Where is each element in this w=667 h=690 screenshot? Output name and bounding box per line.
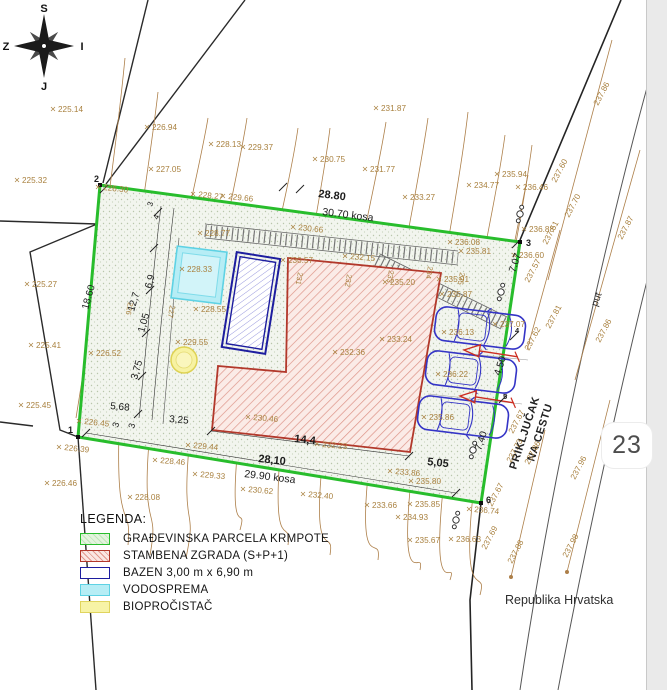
elevation-label: 235.67 bbox=[415, 536, 440, 545]
dimension-label: 3,25 bbox=[169, 414, 190, 427]
elevation-label: 237.07 bbox=[500, 320, 525, 329]
elevation-label: 236.08 bbox=[455, 238, 480, 247]
elevation-label: 236.22 bbox=[443, 370, 468, 379]
elevation-label: 234.93 bbox=[403, 513, 428, 522]
legend-item-building: STAMBENA ZGRADA (S+P+1) bbox=[80, 550, 329, 562]
elevation-label: 235.81 bbox=[466, 247, 491, 256]
dimension-label: 28.80 bbox=[318, 188, 347, 203]
gate-symbol bbox=[451, 510, 462, 529]
elevation-label: 231.87 bbox=[381, 104, 406, 113]
point-label: 1 bbox=[68, 425, 73, 435]
elevation-label: 226.52 bbox=[96, 349, 121, 358]
elevation-label: 225.32 bbox=[22, 176, 47, 185]
compass-north-label: S bbox=[40, 3, 47, 15]
dimension-label: 5,05 bbox=[427, 456, 450, 470]
dimension-label: 5,68 bbox=[110, 401, 131, 414]
elevation-marker bbox=[396, 515, 400, 519]
road-elevation-label: 237.86 bbox=[592, 80, 612, 107]
elevation-label: 226.39 bbox=[64, 443, 90, 455]
elevation-label: 233.27 bbox=[410, 193, 435, 202]
elevation-label: 233.24 bbox=[387, 335, 412, 344]
page-number-badge[interactable]: 23 bbox=[602, 423, 652, 468]
elevation-marker bbox=[45, 481, 49, 485]
elevation-label: 229.37 bbox=[248, 143, 273, 152]
elevation-marker bbox=[408, 538, 412, 542]
elevation-label: 236.74 bbox=[474, 505, 500, 516]
legend-title: LEGENDA: bbox=[80, 512, 329, 526]
legend-item-label: GRAĐEVINSKA PARCELA KRMPOTE bbox=[123, 533, 329, 545]
compass-east-label: I bbox=[80, 41, 83, 53]
legend-item-label: BAZEN 3,00 m x 6,90 m bbox=[123, 567, 253, 579]
elevation-label: 232.36 bbox=[340, 348, 365, 357]
elevation-marker bbox=[363, 167, 367, 171]
legend-item-label: VODOSPREMA bbox=[123, 584, 208, 596]
legend-swatch-pool bbox=[80, 567, 110, 579]
elevation-marker bbox=[149, 167, 153, 171]
legend: LEGENDA: GRAĐEVINSKA PARCELA KRMPOTESTAM… bbox=[80, 512, 329, 618]
legend-swatch-bio bbox=[80, 601, 110, 613]
cistern bbox=[171, 246, 227, 304]
elevation-marker bbox=[29, 343, 33, 347]
elevation-label: 235.94 bbox=[502, 170, 527, 179]
legend-item-parcel: GRAĐEVINSKA PARCELA KRMPOTE bbox=[80, 533, 329, 545]
road-elevation-label: 237.86 bbox=[594, 317, 614, 344]
legend-swatch-parcel bbox=[80, 533, 110, 545]
elevation-label: 228.77 bbox=[205, 229, 230, 238]
elevation-label: 228.08 bbox=[135, 493, 160, 502]
elevation-label: 229.55 bbox=[183, 338, 208, 347]
elevation-label: 234.77 bbox=[474, 181, 499, 190]
right-margin-strip bbox=[646, 0, 667, 690]
elevation-label: 233.66 bbox=[372, 501, 397, 510]
compass-rose: S J Z I bbox=[3, 3, 84, 93]
elevation-label: 236.13 bbox=[449, 328, 474, 337]
elevation-marker bbox=[51, 107, 55, 111]
point-label: 3 bbox=[526, 238, 531, 248]
elevation-label: 235.86 bbox=[429, 413, 454, 422]
road-elevation-label: 237.69 bbox=[480, 524, 500, 551]
dimension-label: 14,4 bbox=[294, 433, 317, 447]
point-label: 2 bbox=[94, 174, 99, 184]
legend-rows: GRAĐEVINSKA PARCELA KRMPOTESTAMBENA ZGRA… bbox=[80, 533, 329, 613]
elevation-marker bbox=[193, 472, 197, 476]
road-elevation-label: 237.87 bbox=[616, 214, 636, 241]
road-elevation-label: 237.70 bbox=[563, 192, 583, 219]
country-label: Republika Hrvatska bbox=[505, 593, 613, 607]
road-elevation-label: 237.57 bbox=[523, 257, 543, 284]
point-label: 6 bbox=[486, 495, 491, 505]
legend-item-pool: BAZEN 3,00 m x 6,90 m bbox=[80, 567, 329, 579]
elevation-label: 228.33 bbox=[187, 265, 212, 274]
legend-swatch-building bbox=[80, 550, 110, 562]
elevation-marker bbox=[449, 537, 453, 541]
elevation-label: 228.13 bbox=[216, 140, 241, 149]
elevation-label: 231.77 bbox=[370, 165, 395, 174]
road-elevation-label: 237.96 bbox=[569, 454, 589, 481]
elevation-label: 228.55 bbox=[201, 305, 226, 314]
elevation-marker bbox=[25, 282, 29, 286]
gate-symbol bbox=[515, 204, 526, 223]
legend-item-label: STAMBENA ZGRADA (S+P+1) bbox=[123, 550, 288, 562]
site-plan: S J Z I PRIKLJUČAK NA CESTU put 225.1422… bbox=[0, 0, 667, 690]
elevation-label: 232.40 bbox=[308, 490, 334, 501]
elevation-label: 226.94 bbox=[152, 123, 177, 132]
elevation-marker bbox=[57, 445, 61, 449]
elevation-label: 236.46 bbox=[523, 183, 548, 192]
elevation-marker bbox=[209, 142, 213, 146]
elevation-marker bbox=[301, 492, 305, 496]
elevation-label: 230.62 bbox=[248, 485, 274, 496]
bio-purifier bbox=[171, 347, 197, 373]
point-label: 5 bbox=[503, 392, 507, 401]
elevation-marker bbox=[241, 487, 245, 491]
elevation-marker bbox=[15, 178, 19, 182]
elevation-marker bbox=[313, 157, 317, 161]
elevation-marker bbox=[516, 185, 520, 189]
elevation-label: 229.33 bbox=[200, 470, 226, 481]
elevation-label: 235.80 bbox=[416, 477, 441, 486]
elevation-label: 235.85 bbox=[415, 500, 440, 509]
legend-swatch-cistern bbox=[80, 584, 110, 596]
elevation-label: 230.57 bbox=[288, 256, 313, 265]
elevation-label: 235.87 bbox=[447, 290, 472, 299]
elevation-marker bbox=[403, 195, 407, 199]
elevation-marker bbox=[128, 495, 132, 499]
elevation-marker bbox=[153, 458, 157, 462]
elevation-marker bbox=[467, 183, 471, 187]
elevation-marker bbox=[374, 106, 378, 110]
elevation-label: 228.46 bbox=[160, 456, 186, 467]
road-elevation-label: 237.88 bbox=[506, 538, 526, 565]
legend-item-label: BIOPROČISTAČ bbox=[123, 601, 213, 613]
road-name-label: put bbox=[589, 291, 604, 308]
elevation-label: 230.75 bbox=[320, 155, 345, 164]
road-elevation-label: 237.98 bbox=[561, 532, 581, 559]
elevation-label: 236.63 bbox=[456, 535, 481, 544]
legend-item-cistern: VODOSPREMA bbox=[80, 584, 329, 596]
elevation-label: 225.45 bbox=[26, 401, 51, 410]
elevation-marker bbox=[19, 403, 23, 407]
legend-item-bio: BIOPROČISTAČ bbox=[80, 601, 329, 613]
compass-west-label: Z bbox=[3, 41, 10, 53]
elevation-label: 225.14 bbox=[58, 105, 83, 114]
compass-south-label: J bbox=[41, 81, 47, 93]
elevation-label: 227.05 bbox=[156, 165, 181, 174]
elevation-label: 225.27 bbox=[32, 280, 57, 289]
elevation-label: 226.46 bbox=[52, 479, 77, 488]
elevation-label: 225.41 bbox=[36, 341, 61, 350]
elevation-marker bbox=[467, 507, 471, 511]
road-elevation-label: 237.81 bbox=[544, 303, 564, 330]
